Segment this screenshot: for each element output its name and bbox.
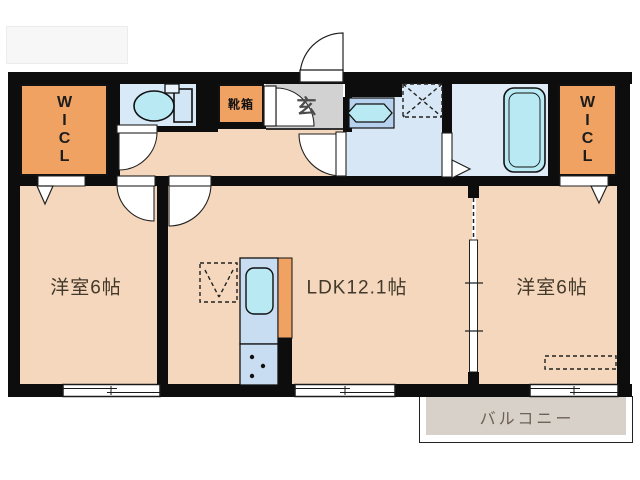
wicl-right-label: WICL — [579, 94, 595, 166]
wicl-right-folding-door — [560, 176, 608, 203]
ldk-door — [169, 176, 211, 226]
bedroom-left-door — [117, 176, 155, 221]
balcony-label: バルコニー — [480, 405, 575, 429]
floor-plan: WICL WICL 靴箱 玄 洋室6帖 LDK12.1帖 洋室6帖 バルコニー — [0, 0, 640, 480]
sliding-window-ldk — [295, 385, 395, 397]
toilet-door — [117, 125, 157, 170]
front-door — [300, 33, 343, 82]
shoe-box-label: 靴箱 — [228, 96, 254, 113]
refrigerator-area-icon — [200, 263, 237, 302]
washbasin-icon — [348, 98, 394, 128]
kitchen-sink-icon — [246, 268, 273, 314]
ldk-label: LDK12.1帖 — [307, 273, 408, 300]
washing-machine-area-icon — [403, 84, 442, 117]
bedroom-left-label: 洋室6帖 — [50, 273, 122, 300]
entrance-label: 玄 — [297, 91, 318, 120]
sliding-window-bedroom-right — [530, 385, 618, 397]
washroom-door — [299, 132, 346, 176]
bathroom-folding-door — [442, 133, 470, 178]
toilet-icon — [134, 84, 192, 122]
kitchen-unit — [240, 258, 292, 385]
wicl-left-folding-door — [37, 176, 85, 204]
sliding-window-bedroom-left — [63, 385, 160, 397]
closet-marker — [545, 356, 616, 369]
wicl-left-label: WICL — [56, 94, 72, 166]
bathtub-icon — [504, 88, 545, 172]
sliding-partition — [465, 186, 483, 385]
bedroom-right-label: 洋室6帖 — [516, 273, 588, 300]
